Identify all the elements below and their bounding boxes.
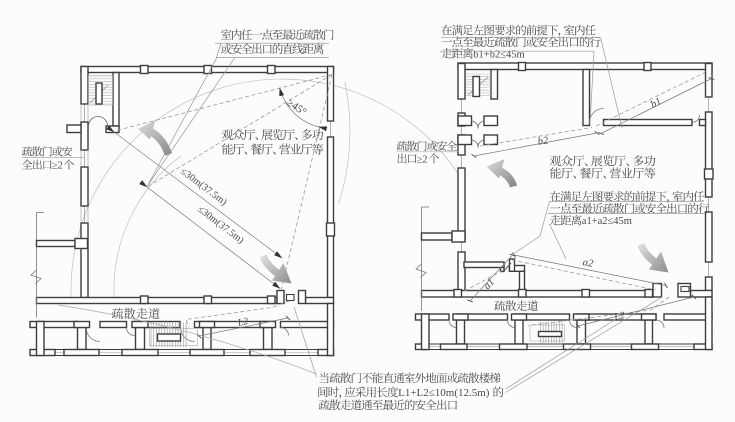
svg-text:≥2: ≥2 [52,161,63,172]
svg-text:L2: L2 [236,316,250,329]
svg-text:≥2: ≥2 [417,154,428,165]
svg-text:L1+L2≤10m(12.5m): L1+L2≤10m(12.5m) [398,387,490,399]
svg-text:L2: L2 [612,310,625,323]
svg-text:a1+a2≤45m: a1+a2≤45m [582,216,632,227]
